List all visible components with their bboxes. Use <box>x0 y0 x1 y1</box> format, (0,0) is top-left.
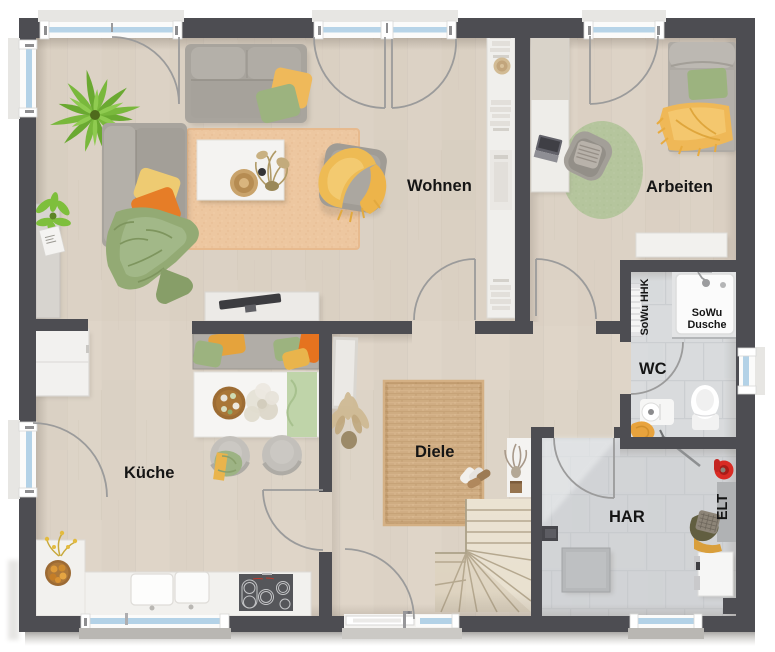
svg-text:Diele: Diele <box>415 443 454 461</box>
svg-text:SoWu: SoWu <box>692 307 722 319</box>
svg-text:Küche: Küche <box>124 464 174 482</box>
svg-text:WC: WC <box>639 360 667 378</box>
svg-text:ELT: ELT <box>715 494 731 520</box>
svg-text:SoWu HHK: SoWu HHK <box>639 278 651 335</box>
svg-text:Wohnen: Wohnen <box>407 177 472 195</box>
svg-text:Dusche: Dusche <box>687 319 726 331</box>
svg-text:Arbeiten: Arbeiten <box>646 178 713 196</box>
svg-text:HAR: HAR <box>609 508 645 526</box>
